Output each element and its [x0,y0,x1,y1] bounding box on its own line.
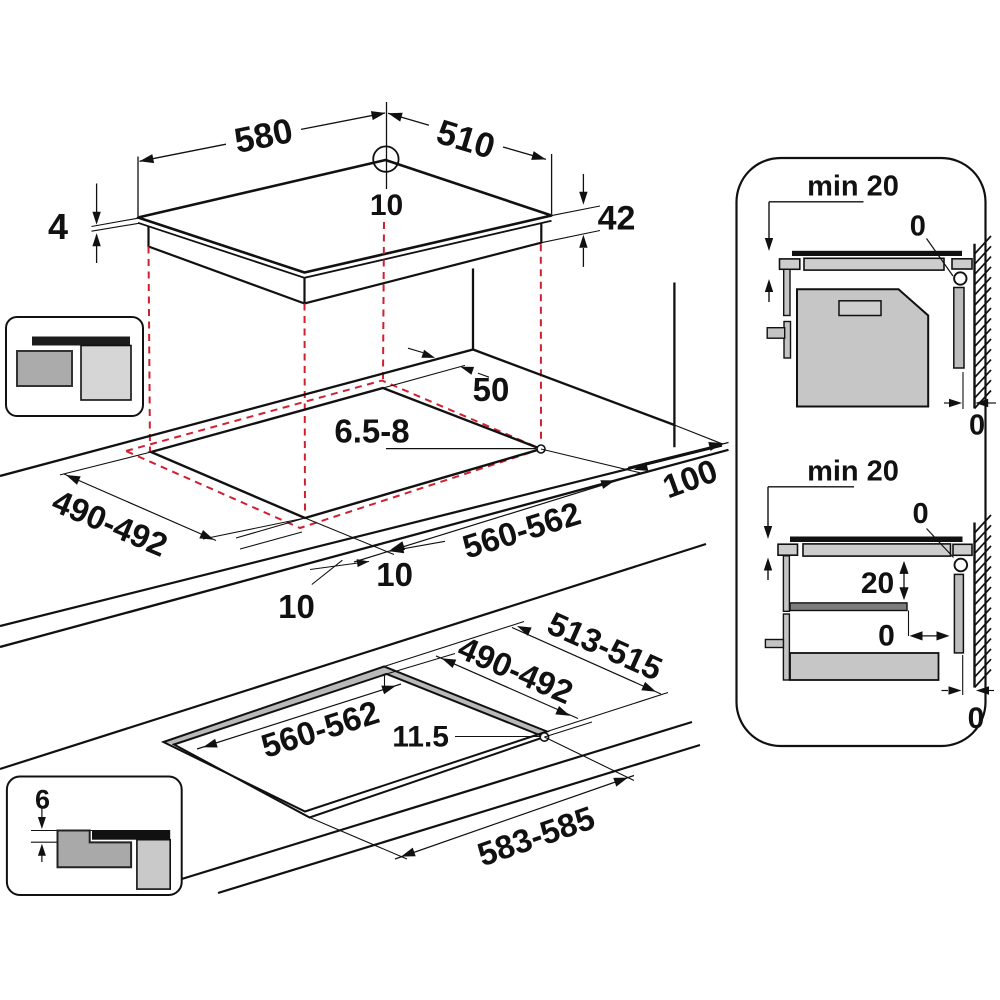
svg-text:0: 0 [968,702,985,735]
svg-text:min 20: min 20 [807,171,899,203]
svg-text:11.5: 11.5 [392,721,449,754]
svg-text:6.5-8: 6.5-8 [334,413,409,450]
svg-text:10: 10 [376,556,413,593]
svg-text:0: 0 [912,498,928,530]
svg-text:0: 0 [878,620,895,653]
svg-text:min 20: min 20 [807,456,899,488]
svg-text:0: 0 [910,211,926,243]
svg-text:0: 0 [969,410,985,442]
svg-text:42: 42 [598,200,636,238]
svg-text:4: 4 [48,206,68,247]
svg-text:10: 10 [278,588,315,625]
svg-text:50: 50 [473,371,510,408]
svg-text:20: 20 [861,567,894,600]
svg-text:10: 10 [370,189,403,222]
